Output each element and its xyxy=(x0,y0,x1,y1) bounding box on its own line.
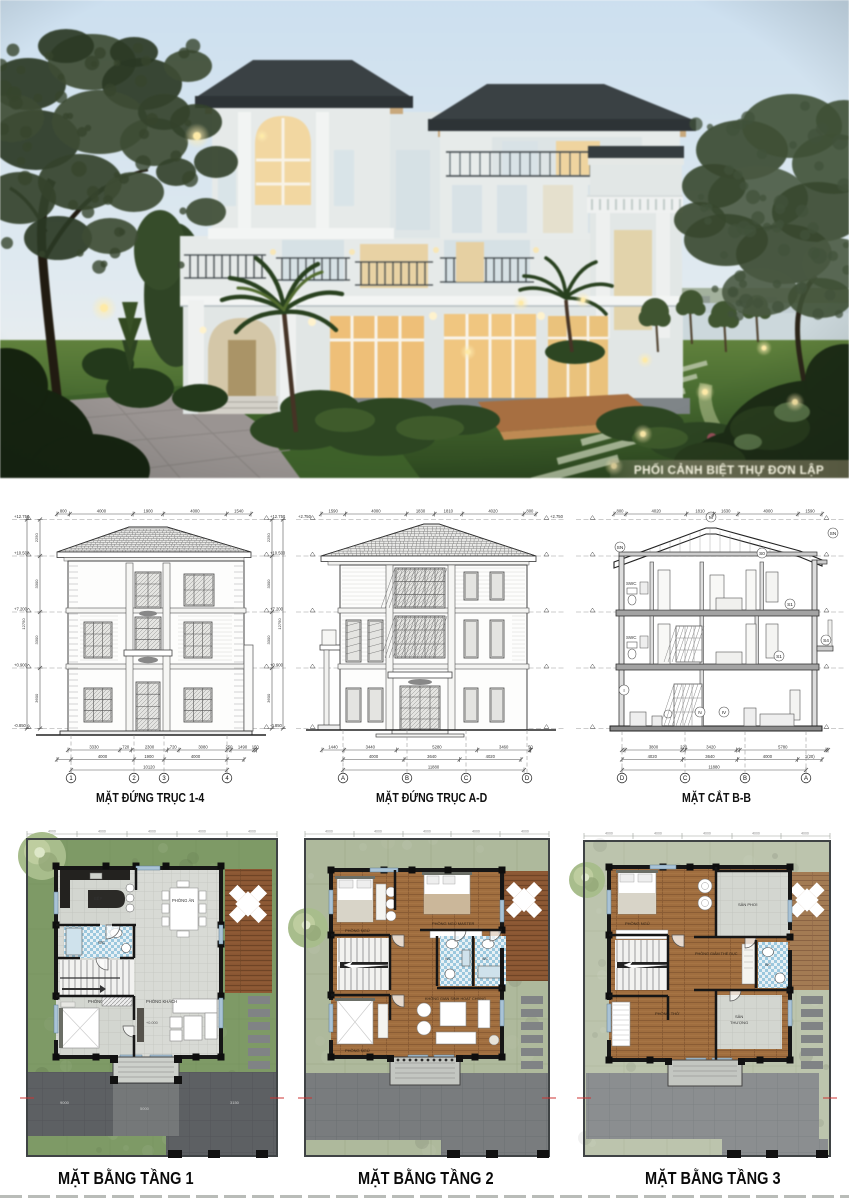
svg-text:11880: 11880 xyxy=(708,765,720,770)
svg-text:3640: 3640 xyxy=(705,754,715,759)
svg-text:3800: 3800 xyxy=(649,745,659,750)
svg-text:+10.500: +10.500 xyxy=(270,551,286,556)
svg-text:D: D xyxy=(620,776,625,782)
svg-text:WC: WC xyxy=(98,940,105,945)
svg-text:10120: 10120 xyxy=(143,765,155,770)
svg-text:SÂN: SÂN xyxy=(735,1014,743,1019)
svg-text:3420: 3420 xyxy=(706,745,716,750)
svg-text:4020: 4020 xyxy=(486,754,496,759)
svg-text:12750: 12750 xyxy=(277,618,282,630)
svg-text:PHÒNG NGỦ: PHÒNG NGỦ xyxy=(345,1048,370,1053)
svg-text:250: 250 xyxy=(226,745,234,750)
svg-text:4000: 4000 xyxy=(98,830,106,834)
svg-text:4000: 4000 xyxy=(763,509,773,514)
svg-text:+0.900: +0.900 xyxy=(14,663,28,668)
svg-text:150: 150 xyxy=(252,745,260,750)
svg-text:4000: 4000 xyxy=(48,830,56,834)
svg-text:4000: 4000 xyxy=(374,830,382,834)
svg-text:S4: S4 xyxy=(823,638,829,644)
svg-text:1(20): 1(20) xyxy=(805,754,815,759)
svg-text:220: 220 xyxy=(680,745,688,750)
svg-text:3600: 3600 xyxy=(34,693,39,703)
svg-text:KHÔNG GIAN SINH HOẠT CHUNG: KHÔNG GIAN SINH HOẠT CHUNG xyxy=(425,996,486,1001)
svg-text:4000: 4000 xyxy=(198,830,206,834)
svg-text:720: 720 xyxy=(170,745,178,750)
svg-text:800: 800 xyxy=(617,509,625,514)
svg-text:1810: 1810 xyxy=(444,509,454,514)
svg-text:PHÒNG NGỦ: PHÒNG NGỦ xyxy=(345,928,370,933)
svg-text:3640: 3640 xyxy=(427,754,437,759)
svg-text:4000: 4000 xyxy=(191,754,201,759)
svg-text:PHÒNG NGỦ MASTER: PHÒNG NGỦ MASTER xyxy=(432,921,475,926)
svg-text:11880: 11880 xyxy=(428,765,440,770)
svg-text:3150: 3150 xyxy=(230,1100,240,1105)
svg-text:4000: 4000 xyxy=(752,832,760,836)
svg-text:2250: 2250 xyxy=(34,533,39,543)
svg-text:+2.750: +2.750 xyxy=(550,514,564,519)
svg-text:4020: 4020 xyxy=(648,754,658,759)
svg-text:720: 720 xyxy=(122,745,130,750)
svg-text:PHỐI CẢNH BIỆT THỰ ĐƠN LẬP: PHỐI CẢNH BIỆT THỰ ĐƠN LẬP xyxy=(634,463,824,477)
svg-text:WC: WC xyxy=(765,963,771,967)
svg-text:1830: 1830 xyxy=(416,509,426,514)
svg-text:SWC: SWC xyxy=(626,581,637,586)
svg-text:5780: 5780 xyxy=(778,745,788,750)
svg-text:4000: 4000 xyxy=(654,832,662,836)
svg-text:1810: 1810 xyxy=(695,509,705,514)
svg-text:4020: 4020 xyxy=(652,509,662,514)
svg-text:+2.750: +2.750 xyxy=(298,514,312,519)
svg-text:3300: 3300 xyxy=(34,579,39,589)
svg-text:3460: 3460 xyxy=(499,745,509,750)
svg-text:1900: 1900 xyxy=(144,754,154,759)
svg-text:1590: 1590 xyxy=(328,509,338,514)
svg-text:+10.500: +10.500 xyxy=(14,551,30,556)
svg-text:C: C xyxy=(683,776,688,782)
svg-text:3440: 3440 xyxy=(366,745,376,750)
svg-text:+12.750: +12.750 xyxy=(270,514,286,519)
svg-text:3300: 3300 xyxy=(266,579,271,589)
svg-text:PHÒNG KHÁCH: PHÒNG KHÁCH xyxy=(146,999,177,1004)
svg-text:B: B xyxy=(405,776,409,782)
svg-text:PHÒNG ĂN: PHÒNG ĂN xyxy=(172,898,194,903)
svg-text:+7.200: +7.200 xyxy=(14,607,28,612)
svg-text:S0: S0 xyxy=(759,551,765,557)
svg-text:THƯỢNG: THƯỢNG xyxy=(730,1020,748,1025)
svg-text:4000: 4000 xyxy=(763,754,773,759)
svg-text:1440: 1440 xyxy=(328,745,338,750)
svg-text:BẾP: BẾP xyxy=(94,896,103,901)
svg-text:IV: IV xyxy=(722,710,727,716)
svg-text:1630: 1630 xyxy=(721,509,731,514)
svg-text:B: B xyxy=(743,776,747,782)
svg-text:1900: 1900 xyxy=(143,509,153,514)
svg-text:4000: 4000 xyxy=(325,830,333,834)
svg-text:1540: 1540 xyxy=(234,509,244,514)
svg-text:SÂN PHƠI: SÂN PHƠI xyxy=(738,902,757,907)
svg-text:3300: 3300 xyxy=(34,635,39,645)
svg-text:I: I xyxy=(623,688,624,694)
svg-text:+0.000: +0.000 xyxy=(146,1021,158,1025)
svg-text:12750: 12750 xyxy=(21,618,26,630)
svg-text:5280: 5280 xyxy=(432,745,442,750)
svg-text:SN: SN xyxy=(830,531,837,537)
svg-text:50: 50 xyxy=(528,745,533,750)
svg-text:4000: 4000 xyxy=(423,830,431,834)
svg-text:+12.750: +12.750 xyxy=(14,514,30,519)
svg-text:4000: 4000 xyxy=(97,509,107,514)
svg-text:4000: 4000 xyxy=(98,754,108,759)
svg-text:800: 800 xyxy=(526,509,534,514)
svg-text:4000: 4000 xyxy=(801,832,809,836)
svg-text:3600: 3600 xyxy=(266,693,271,703)
svg-text:2250: 2250 xyxy=(266,533,271,543)
svg-text:C: C xyxy=(464,776,469,782)
svg-text:A: A xyxy=(804,776,808,782)
svg-text:9000: 9000 xyxy=(60,1100,70,1105)
svg-text:PHÒNG GIẢM THỂ DỤC: PHÒNG GIẢM THỂ DỤC xyxy=(695,951,738,956)
svg-text:SN: SN xyxy=(617,545,624,551)
svg-text:3300: 3300 xyxy=(266,635,271,645)
svg-text:4000: 4000 xyxy=(605,832,613,836)
svg-text:1490: 1490 xyxy=(238,745,248,750)
svg-text:4000: 4000 xyxy=(190,509,200,514)
svg-text:-0.850: -0.850 xyxy=(14,723,27,728)
svg-text:1590: 1590 xyxy=(805,509,815,514)
svg-text:WC: WC xyxy=(445,957,452,961)
svg-text:4020: 4020 xyxy=(488,509,498,514)
svg-text:4000: 4000 xyxy=(371,509,381,514)
svg-text:S1: S1 xyxy=(776,654,782,660)
svg-text:4000: 4000 xyxy=(521,830,529,834)
svg-text:4000: 4000 xyxy=(703,832,711,836)
svg-text:3080: 3080 xyxy=(198,745,208,750)
svg-text:4000: 4000 xyxy=(369,754,379,759)
svg-text:D: D xyxy=(525,776,530,782)
svg-text:PHÒNG NGỦ: PHÒNG NGỦ xyxy=(625,921,650,926)
svg-text:N: N xyxy=(698,710,702,716)
svg-text:4000: 4000 xyxy=(248,830,256,834)
svg-text:A: A xyxy=(341,776,345,782)
svg-text:WC: WC xyxy=(482,957,489,961)
svg-text:800: 800 xyxy=(60,509,68,514)
svg-text:2300: 2300 xyxy=(145,745,155,750)
svg-text:3330: 3330 xyxy=(89,745,99,750)
svg-text:4000: 4000 xyxy=(148,830,156,834)
svg-text:4000: 4000 xyxy=(472,830,480,834)
svg-text:SWC: SWC xyxy=(626,635,637,640)
svg-text:S1: S1 xyxy=(787,602,793,608)
